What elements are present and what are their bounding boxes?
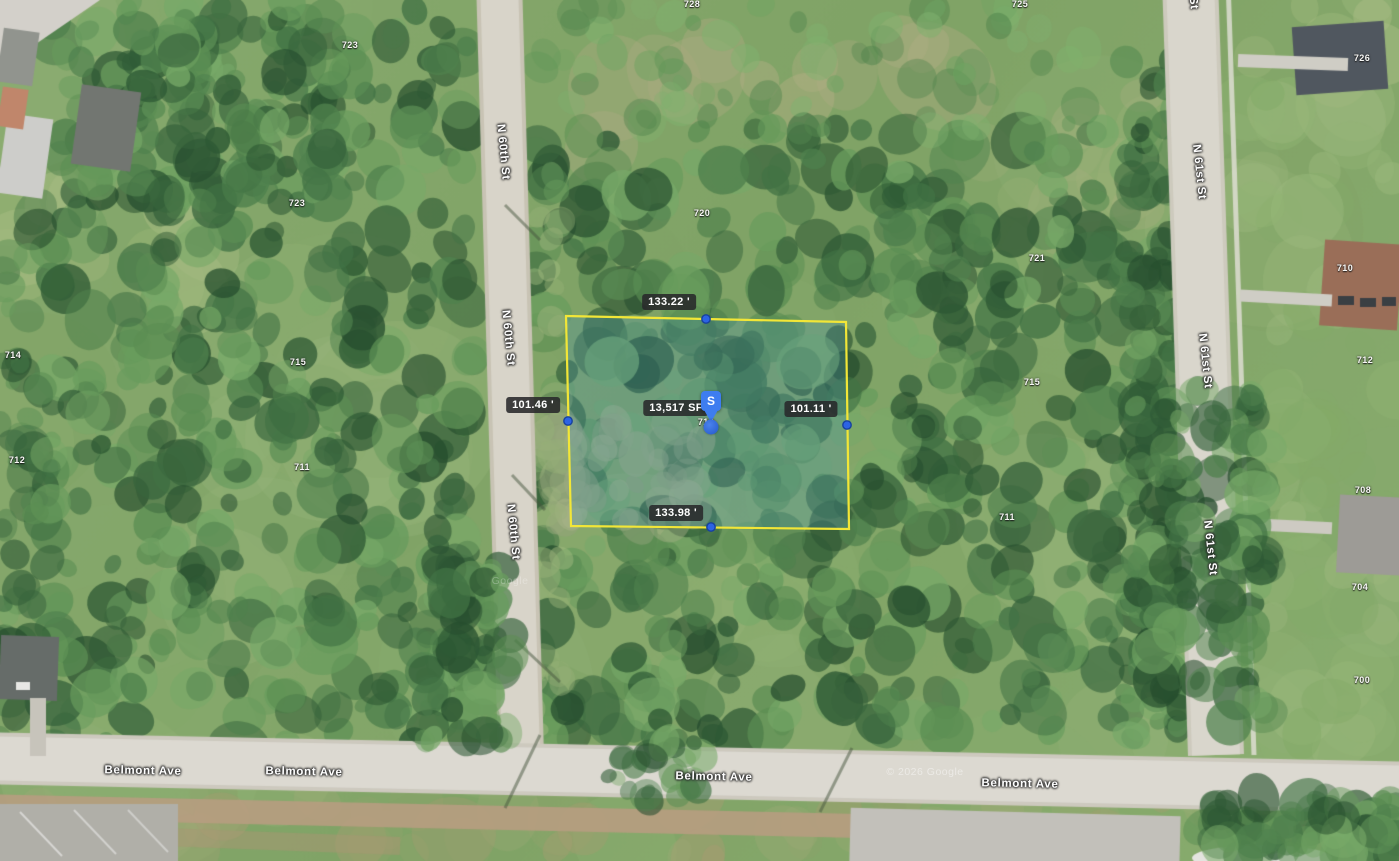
map-attribution-watermark: © 2026 Google: [886, 766, 963, 778]
parcel-midpoint-handle[interactable]: [564, 417, 572, 425]
parcel-midpoint-handle[interactable]: [843, 421, 851, 429]
parcel-overlay: [0, 0, 1399, 861]
street-label-belmont-ave: Belmont Ave: [981, 777, 1058, 791]
house-number-label: 721: [1029, 253, 1045, 263]
measurement-bottom: 133.98 ': [649, 505, 703, 521]
house-number-label: 728: [684, 0, 700, 9]
house-number-label: 710: [1337, 263, 1353, 273]
measurement-left: 101.46 ': [506, 397, 560, 413]
house-number-label: 700: [1354, 675, 1370, 685]
house-number-label: 715: [290, 357, 306, 367]
marker-letter: S: [707, 394, 715, 408]
map-attribution-watermark: Google: [492, 575, 529, 587]
house-number-label: 712: [1357, 355, 1373, 365]
house-number-label: 714: [5, 350, 21, 360]
house-number-label: 715: [1024, 377, 1040, 387]
house-number-label: 711: [294, 462, 310, 472]
marker-base-dot: [704, 420, 719, 435]
measurement-right: 101.11 ': [784, 401, 837, 417]
parcel-marker[interactable]: S: [700, 391, 722, 422]
house-number-label: 712: [9, 455, 25, 465]
house-number-label: 720: [694, 208, 710, 218]
parcel-midpoint-handle[interactable]: [702, 315, 710, 323]
house-number-label: 725: [1012, 0, 1028, 9]
marker-pin-icon[interactable]: S: [701, 391, 721, 411]
house-number-label: 723: [289, 198, 305, 208]
parcel-area-label: 13,517 SF: [643, 400, 708, 416]
measurement-top: 133.22 ': [642, 294, 696, 310]
parcel-midpoint-handle[interactable]: [707, 523, 715, 531]
street-label-belmont-ave: Belmont Ave: [265, 765, 342, 779]
house-number-label: 726: [1354, 53, 1370, 63]
house-number-label: 708: [1355, 485, 1371, 495]
house-number-label: 711: [999, 512, 1015, 522]
house-number-label: 723: [342, 40, 358, 50]
map-viewport: N 60th StN 60th StN 60th StN 61st StN 61…: [0, 0, 1399, 861]
street-label-belmont-ave: Belmont Ave: [104, 764, 181, 778]
house-number-label: 704: [1352, 582, 1368, 592]
street-label-belmont-ave: Belmont Ave: [675, 770, 752, 784]
